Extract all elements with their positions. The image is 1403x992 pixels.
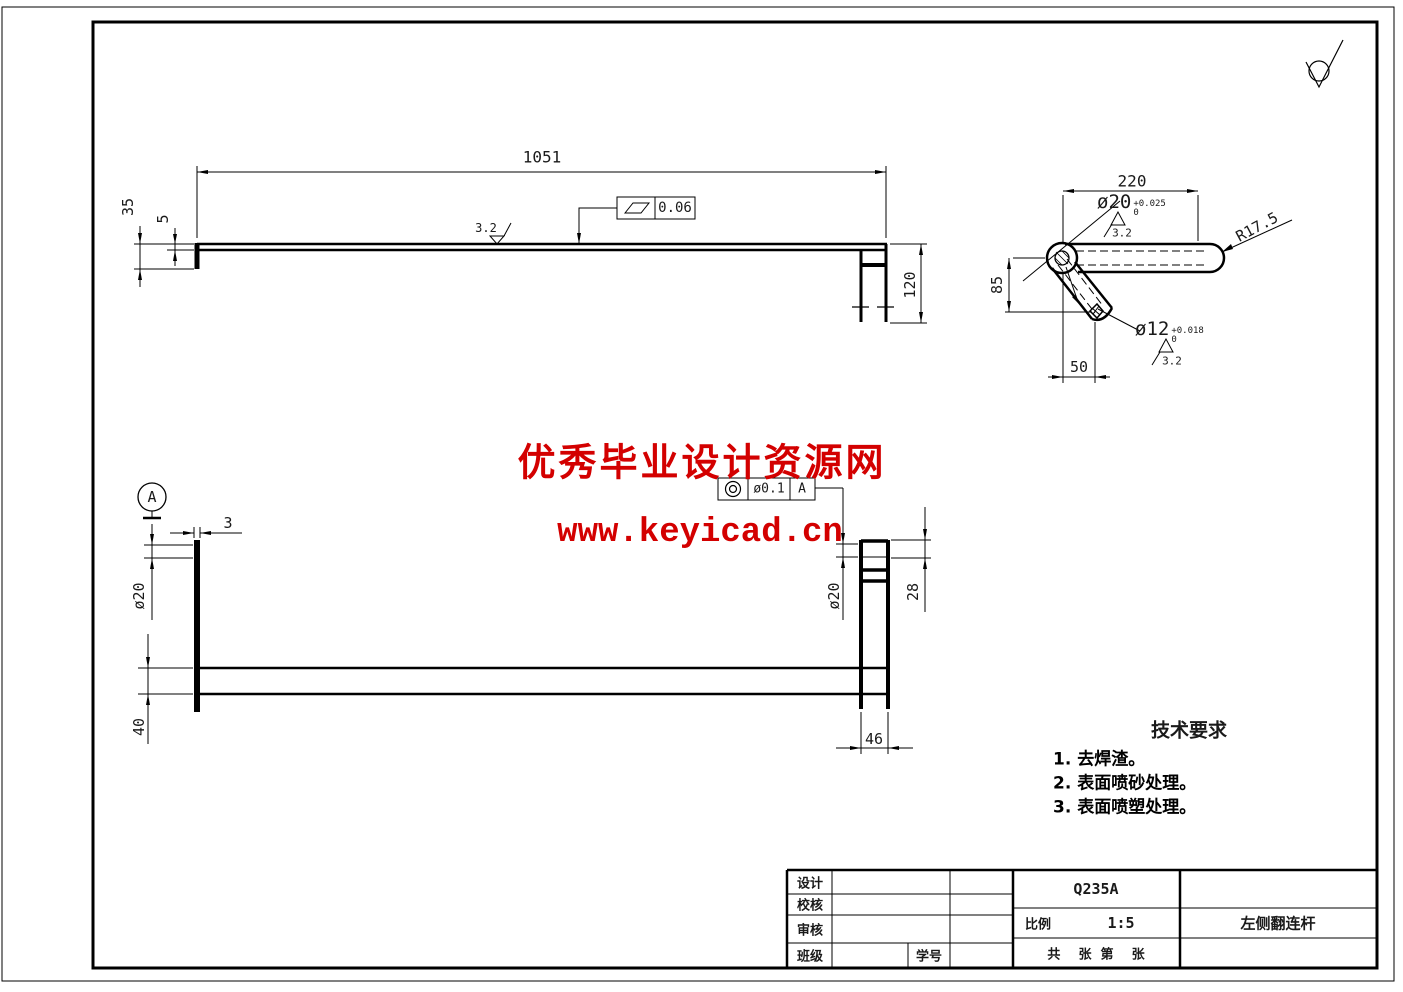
dim-hole20: ø20+0.0250 xyxy=(1097,191,1166,220)
title-block-material: Q235A xyxy=(1073,880,1118,898)
dim-120: 120 xyxy=(901,271,919,298)
dim-1051: 1051 xyxy=(523,148,562,167)
title-block-scale-label: 比例 xyxy=(1025,914,1051,933)
page-border xyxy=(2,7,1394,981)
hidden-lines xyxy=(1076,251,1206,265)
flatness-icon xyxy=(625,203,649,213)
hole20-tol-lower: 0 xyxy=(1133,209,1166,218)
dim-28: 28 xyxy=(904,583,922,601)
title-block-part-name: 左侧翻连杆 xyxy=(1240,913,1315,934)
hole20-label: ø20 xyxy=(1097,191,1131,213)
title-block-sheet-text: 共 张 第 张 xyxy=(1047,944,1144,963)
watermark-line2: www.keyicad.cn xyxy=(557,514,843,552)
title-block-check-label: 校核 xyxy=(797,895,823,914)
roughness-value-topview: 3.2 xyxy=(475,221,497,235)
tolerance-value: ø0.1 xyxy=(753,482,784,497)
dim-3: 3 xyxy=(223,514,232,532)
hole12-leader xyxy=(1098,309,1140,331)
title-block-class-label: 班级 xyxy=(797,946,823,965)
dim-35: 35 xyxy=(119,198,137,216)
datum-label: A xyxy=(147,488,156,506)
drawing-linework xyxy=(0,0,1403,992)
tech-req-item: 2. 表面喷砂处理。 xyxy=(1053,769,1196,794)
title-block-student-id-label: 学号 xyxy=(916,946,942,965)
dim-hole12: ø12+0.0180 xyxy=(1135,318,1204,347)
title-block-design-label: 设计 xyxy=(797,873,823,892)
tech-req-item: 3. 表面喷塑处理。 xyxy=(1053,793,1196,818)
dim-50: 50 xyxy=(1070,358,1088,376)
title-block-review-label: 审核 xyxy=(797,920,823,939)
cad-drawing-page: 优秀毕业设计资源网 www.keyicad.cn 1051 35 5 120 0… xyxy=(0,0,1403,992)
tolerance-datum: A xyxy=(798,482,806,497)
dim-220: 220 xyxy=(1118,172,1147,191)
roughness-value-hole20: 3.2 xyxy=(1112,227,1132,240)
surface-finish-icon xyxy=(1306,40,1343,87)
dim-46: 46 xyxy=(865,730,883,748)
dim-85: 85 xyxy=(988,276,1006,294)
dim-40: 40 xyxy=(130,718,148,736)
dim-d20-right: ø20 xyxy=(825,582,843,609)
hole12-label: ø12 xyxy=(1135,318,1169,340)
watermark-line1: 优秀毕业设计资源网 xyxy=(517,432,886,487)
hole12-tol-lower: 0 xyxy=(1171,336,1204,345)
dim-d20-left: ø20 xyxy=(130,582,148,609)
roughness-value-hole12: 3.2 xyxy=(1162,355,1182,368)
tech-req-title: 技术要求 xyxy=(1151,716,1227,743)
flatness-value: 0.06 xyxy=(658,200,692,216)
top-view xyxy=(134,166,927,323)
title-block-scale-value: 1:5 xyxy=(1107,914,1134,932)
tech-req-item: 1. 去焊渣。 xyxy=(1053,745,1145,770)
dim-5: 5 xyxy=(154,214,172,223)
